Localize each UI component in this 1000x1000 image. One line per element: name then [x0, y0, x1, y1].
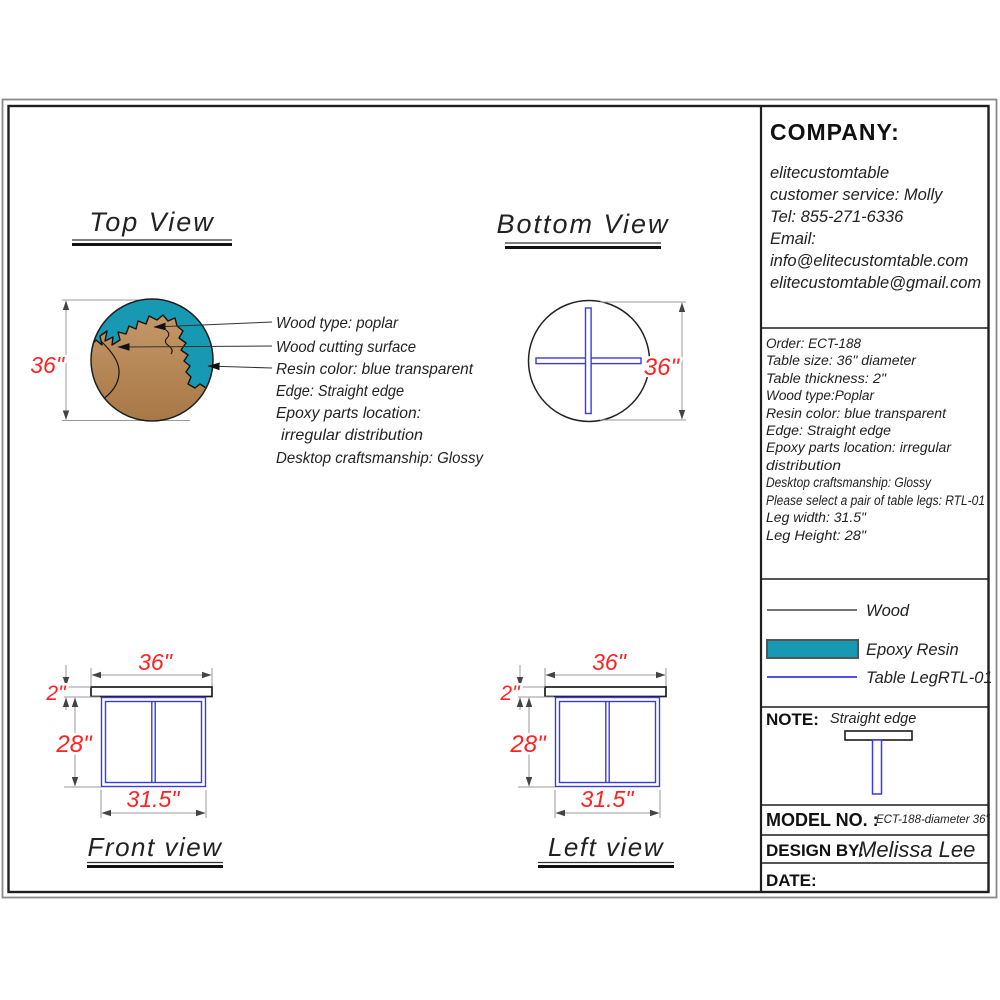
order-epoxy-location: Epoxy parts location: irregular: [766, 440, 952, 455]
company-customer-service: customer service: Molly: [770, 186, 944, 204]
order-block: Order: ECT-188 Table size: 36" diameter …: [766, 336, 985, 543]
left-view-leg-height-label: 28": [509, 731, 547, 758]
model-no-value: ECT-188-diameter 36": [876, 814, 991, 826]
annotation-epoxy-location-2: irregular distribution: [281, 427, 423, 444]
front-view-tabletop: [91, 687, 212, 697]
front-view-title-underline: [87, 863, 223, 867]
design-by-label: DESIGN BY:: [766, 841, 864, 860]
front-view-title: Front view: [88, 832, 224, 862]
legend-wood-label: Wood: [866, 602, 910, 620]
order-edge: Edge: Straight edge: [766, 423, 891, 438]
front-view: 36" 2" 28" 31.5" Front view: [45, 649, 223, 867]
legend-epoxy-label: Epoxy Resin: [866, 641, 959, 659]
legend-block: Wood Epoxy Resin Table LegRTL-01: [767, 602, 993, 687]
order-resin-color: Resin color: blue transparent: [766, 406, 947, 421]
left-view-thickness-label: 2": [499, 682, 521, 705]
order-craftsmanship: Desktop craftsmanship: Glossy: [766, 475, 932, 490]
title-block: MODEL NO. : ECT-188-diameter 36" DESIGN …: [766, 810, 991, 890]
order-leg-width: Leg width: 31.5": [766, 510, 867, 525]
left-view-legs: [556, 698, 660, 787]
drawing-sheet: Top View 36" Wood type: poplar Wood cutt…: [0, 0, 1000, 1000]
bottom-view-diameter-label: 36": [644, 354, 681, 381]
annotation-resin-color: Resin color: blue transparent: [276, 361, 474, 378]
front-view-width-label: 36": [138, 649, 174, 675]
annotation-craftsmanship: Desktop craftsmanship: Glossy: [276, 450, 484, 467]
annotation-wood-type: Wood type: poplar: [276, 315, 399, 332]
design-by-value: Melissa Lee: [858, 837, 975, 862]
top-view-diameter-label: 36": [30, 352, 66, 378]
bottom-view-title: Bottom View: [496, 209, 669, 239]
company-email-label: Email:: [770, 230, 816, 248]
bottom-view: Bottom View 36": [496, 209, 686, 422]
left-view-tabletop: [545, 687, 666, 697]
order-table-size: Table size: 36" diameter: [766, 353, 917, 368]
left-view: 36" 2" 28" 31.5" Left view: [499, 649, 674, 867]
left-view-width-label: 36": [592, 649, 628, 675]
company-telephone: Tel: 855-271-6336: [770, 208, 904, 226]
note-block: NOTE: Straight edge: [766, 710, 916, 794]
front-view-legs: [102, 698, 206, 787]
company-heading: COMPANY:: [770, 119, 900, 145]
cad-drawing: Top View 36" Wood type: poplar Wood cutt…: [0, 0, 1000, 1000]
legend-table-leg-label: Table LegRTL-01: [866, 669, 993, 687]
note-heading: NOTE:: [766, 710, 819, 729]
front-view-thickness-label: 2": [45, 682, 67, 705]
info-panel: COMPANY: elitecustomtable customer servi…: [761, 106, 993, 892]
model-no-label: MODEL NO. :: [766, 810, 879, 830]
legend-epoxy-symbol: [767, 640, 858, 658]
order-leg-model: Please select a pair of table legs: RTL-…: [766, 493, 985, 508]
front-view-leg-height-label: 28": [55, 731, 93, 758]
front-view-leg-width-label: 31.5": [127, 786, 182, 812]
left-view-title: Left view: [548, 832, 665, 862]
left-view-leg-width-label: 31.5": [581, 786, 636, 812]
note-text: Straight edge: [830, 711, 916, 727]
annotation-epoxy-location: Epoxy parts location:: [276, 405, 421, 422]
top-view-title-underline: [72, 240, 232, 245]
top-view-title: Top View: [89, 207, 215, 237]
annotation-cutting-surface: Wood cutting surface: [276, 339, 416, 356]
top-view: Top View 36" Wood type: poplar Wood cutt…: [30, 207, 484, 467]
company-name: elitecustomtable: [770, 164, 889, 182]
company-email-2: elitecustomtable@gmail.com: [770, 274, 981, 292]
order-wood-type: Wood type:Poplar: [766, 388, 875, 403]
bottom-view-title-underline: [505, 243, 661, 248]
order-table-thickness: Table thickness: 2": [766, 371, 887, 386]
company-block: COMPANY: elitecustomtable customer servi…: [770, 119, 981, 292]
company-email-1: info@elitecustomtable.com: [770, 252, 968, 270]
left-view-title-underline: [538, 863, 674, 867]
order-leg-height: Leg Height: 28": [766, 528, 867, 543]
order-number: Order: ECT-188: [766, 336, 861, 351]
note-edge-profile-leg: [873, 740, 882, 794]
annotation-edge: Edge: Straight edge: [276, 383, 404, 400]
date-label: DATE:: [766, 871, 817, 890]
note-edge-profile-top: [845, 731, 912, 740]
order-epoxy-location-2: distribution: [766, 458, 841, 473]
